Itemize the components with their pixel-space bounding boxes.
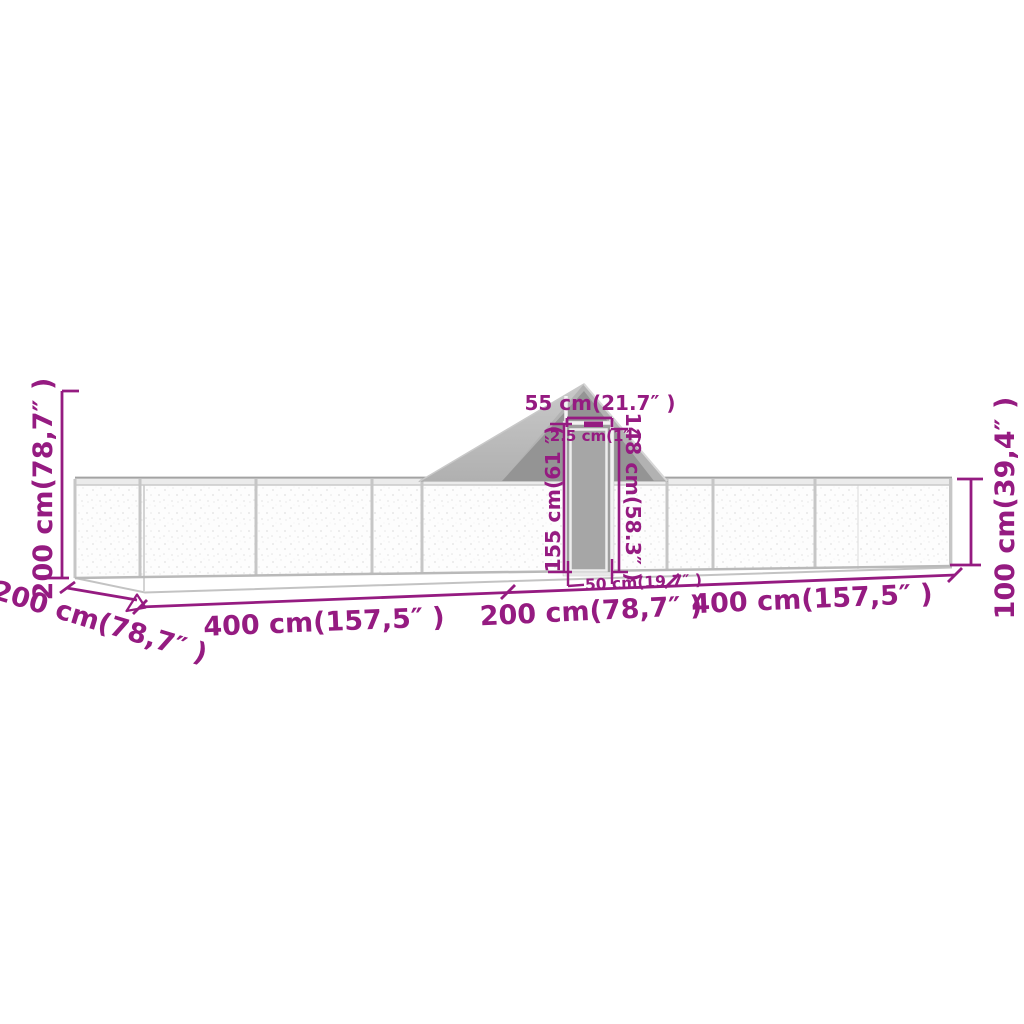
mesh-front-face [75, 479, 952, 578]
dim-center-label: 200 cm(78,7″ ) [479, 591, 703, 633]
dim-total-height-label: 200 cm(78,7″ ) [28, 378, 59, 601]
product-image-canvas: 200 cm(78,7″ ) 200 cm(78,7″ ) 400 cm(157… [0, 0, 1024, 1024]
dim-wall-height: 100 cm(39,4″ ) [950, 397, 1021, 620]
dim-total-height: 200 cm(78,7″ ) [28, 378, 79, 601]
dim-door-inner-height-label: 148 cm(58.3″ ) [621, 412, 645, 581]
door-leaf [571, 430, 607, 571]
dim-run-left-label: 400 cm(157,5″ ) [203, 602, 446, 643]
dim-depth: 200 cm(78,7″ ) [0, 575, 211, 670]
dim-depth-label: 200 cm(78,7″ ) [0, 575, 211, 670]
dim-door-top-width-label: 55 cm(21.7″ ) [524, 391, 675, 415]
dim-door-outer-height-label: 155 cm(61 ″) [541, 425, 565, 572]
cage-structure [75, 477, 952, 593]
dim-wall-height-label: 100 cm(39,4″ ) [990, 397, 1021, 620]
coop-dimension-diagram: 200 cm(78,7″ ) 200 cm(78,7″ ) 400 cm(157… [0, 0, 1024, 1024]
